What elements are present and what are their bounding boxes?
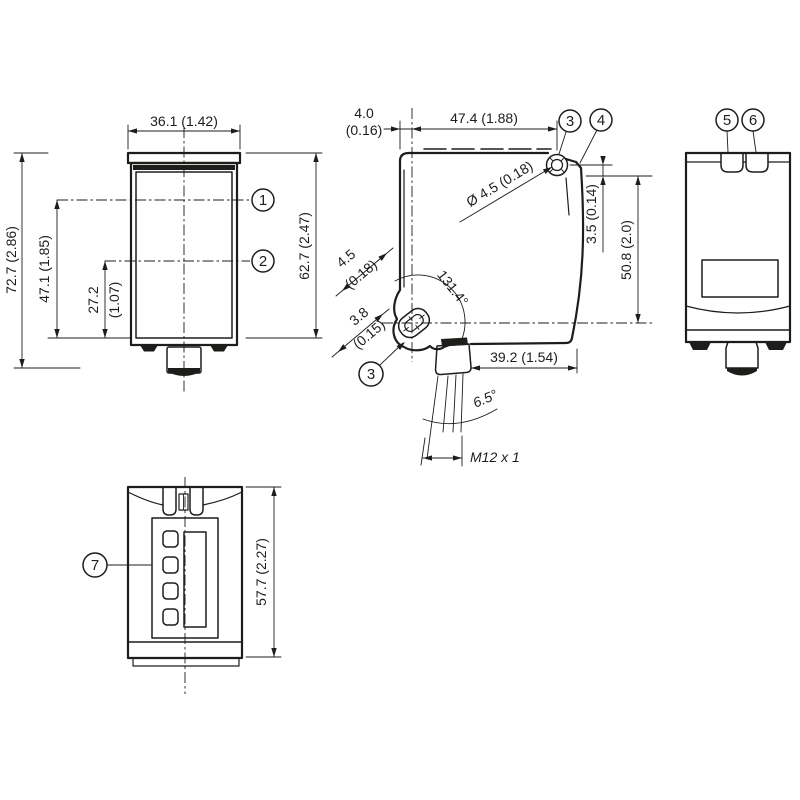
side-topleft-corner (400, 153, 409, 161)
callout-2: 2 (252, 250, 274, 272)
callout-3: 3 (559, 110, 581, 154)
side-rear-inner-line (566, 178, 569, 215)
callout-3b-label: 3 (367, 366, 375, 383)
callout-1-label: 1 (259, 192, 267, 209)
dim-bottom-height-label: 57.7 (2.27) (253, 538, 269, 606)
dim-side-face-offset-in-label: (0.16) (346, 122, 383, 138)
callout-6-label: 6 (749, 112, 757, 129)
side-view: 131.4° 4.0 (0.16) 47.4 (1.88) 3 4 (332, 105, 652, 466)
side-m12-stub (427, 374, 463, 459)
callout-2-label: 2 (259, 253, 267, 270)
dim-side-hole-spacing: 50.8 (2.0) (618, 176, 641, 323)
dim-side-thread-label: M12 x 1 (470, 449, 520, 465)
rear-body-outline (686, 153, 790, 342)
dim-front-body-height-label: 62.7 (2.47) (296, 212, 312, 280)
bottom-button-3 (163, 583, 178, 599)
dim-front-width-label: 36.1 (1.42) (150, 113, 218, 129)
dim-side-top-width-label: 47.4 (1.88) (450, 110, 518, 126)
callout-6: 6 (742, 109, 764, 152)
drawing-canvas: 1 2 36.1 (1.42) 72.7 (2.86) (0, 0, 800, 800)
callout-7: 7 (83, 553, 151, 577)
front-foot-right (210, 345, 228, 352)
callout-7-label: 7 (91, 557, 99, 574)
dim-bottom-height: 57.7 (2.27) (246, 487, 281, 657)
bottom-tab-1 (163, 488, 176, 515)
dim-side-slot-width: 4.5 (0.18) (333, 246, 393, 296)
dim-side-hole-offset-label: 3.5 (0.14) (583, 184, 599, 244)
bottom-curve-left (128, 492, 163, 505)
dim-side-connector-tilt-label: 6.5° (470, 386, 500, 411)
side-mounting-hole-outer (547, 155, 568, 176)
bottom-tab-2 (190, 488, 203, 515)
callout-3b: 3 (359, 340, 407, 386)
bottom-button-1 (163, 531, 178, 547)
dim-front-axis2-mm-label: 27.2 (85, 286, 101, 313)
callout-3-label: 3 (566, 113, 574, 130)
rear-label-plate (702, 260, 778, 297)
dim-side-hole-diameter: Ø 4.5 (0.18) (460, 158, 553, 222)
dim-front-axis2-height: 27.2 (1.07) (85, 261, 122, 338)
rear-foot-right (765, 342, 787, 350)
dim-side-slot-width-mm-label: 4.5 (333, 246, 358, 271)
dim-front-total-height-label: 72.7 (2.86) (3, 226, 19, 294)
rear-led-2 (746, 153, 768, 172)
dim-side-swivel-angle-label: 131.4° (434, 267, 472, 309)
dim-front-axis2-in-label: (1.07) (106, 282, 122, 319)
callout-4-label: 4 (597, 112, 605, 129)
rear-connector (726, 342, 758, 368)
callout-5-label: 5 (723, 112, 731, 129)
dim-side-bottom-width-label: 39.2 (1.54) (490, 349, 558, 365)
bottom-button-4 (163, 609, 178, 625)
rear-housing-seam (686, 306, 790, 313)
callout-4: 4 (580, 109, 612, 163)
dim-side-bottom-width: 39.2 (1.54) (471, 349, 577, 373)
bottom-view: 7 57.7 (2.27) (83, 477, 281, 694)
rear-foot-left (689, 342, 711, 350)
callout-1: 1 (252, 189, 274, 211)
dim-side-hole-spacing-label: 50.8 (2.0) (618, 220, 634, 280)
bottom-button-2 (163, 557, 178, 573)
rear-view: 5 6 (686, 109, 790, 376)
dimensional-drawing: 1 2 36.1 (1.42) 72.7 (2.86) (0, 0, 800, 800)
dim-side-hole-offset: 3.5 (0.14) (570, 156, 652, 252)
bottom-curve-right (203, 492, 242, 505)
dim-front-axis1-height-label: 47.1 (1.85) (36, 235, 52, 303)
dim-front-width: 36.1 (1.42) (128, 113, 240, 149)
bottom-strip (133, 658, 239, 666)
rear-connector-cap (727, 368, 757, 376)
bottom-display (184, 532, 206, 627)
rear-led-1 (721, 153, 743, 172)
dim-side-thread: M12 x 1 (421, 436, 520, 466)
dim-front-body-height: 62.7 (2.47) (246, 153, 322, 338)
dim-side-face-offset-mm-label: 4.0 (354, 105, 374, 121)
callout-5: 5 (716, 109, 738, 152)
dim-side-top: 4.0 (0.16) 47.4 (1.88) (346, 105, 557, 150)
dim-side-slot-length: 3.8 (0.15) (332, 304, 389, 357)
front-view: 1 2 36.1 (1.42) 72.7 (2.86) (3, 113, 322, 392)
front-foot-left (140, 345, 158, 352)
